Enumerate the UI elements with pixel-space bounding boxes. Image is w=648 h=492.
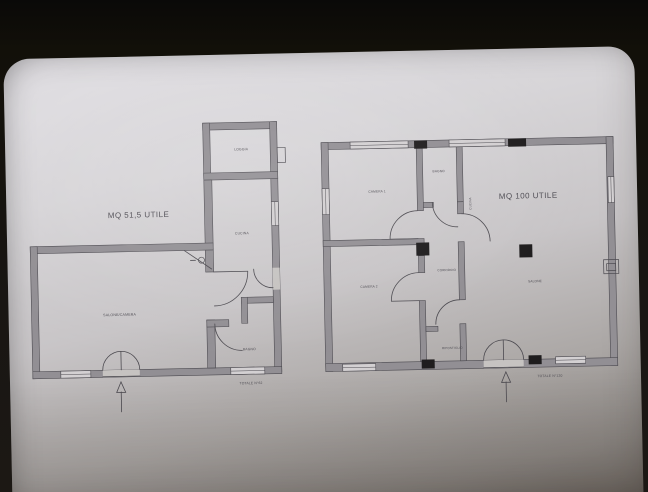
room-label-ripostiglio: RIPOSTIGLIO bbox=[442, 346, 463, 350]
room-label-bagno: BAGNO bbox=[432, 169, 445, 173]
wall bbox=[456, 147, 463, 202]
plan-total: TOTALE N°120 bbox=[537, 374, 562, 379]
plan-title: MQ 51,5 UTILE bbox=[108, 210, 170, 220]
entry-door-arc bbox=[503, 339, 523, 359]
column-mark bbox=[414, 140, 427, 148]
room-label-camera1: CAMERA 1 bbox=[368, 189, 385, 193]
wall bbox=[416, 148, 423, 211]
wall bbox=[30, 243, 213, 254]
wall bbox=[204, 180, 214, 272]
wall bbox=[606, 137, 618, 366]
wall bbox=[30, 247, 40, 379]
door-arc-cucina bbox=[462, 213, 491, 242]
wall bbox=[204, 172, 278, 181]
wall bbox=[426, 326, 438, 331]
door-arc-bagno bbox=[432, 202, 458, 228]
entrance-arrow-head bbox=[501, 372, 510, 383]
paper-sheet: MQ 51,5 UTILELOGGIACUCINASALONE/CAMERABA… bbox=[3, 46, 643, 492]
wall bbox=[270, 122, 282, 372]
wall bbox=[423, 202, 433, 207]
entry-door-arc bbox=[483, 340, 503, 360]
wall bbox=[457, 202, 463, 214]
room-label-cucina: CUCINA bbox=[468, 197, 472, 209]
column-mark bbox=[422, 359, 435, 368]
room-label-cucina: CUCINA bbox=[235, 231, 250, 235]
room-label-bagno: BAGNO bbox=[243, 347, 256, 351]
wall bbox=[321, 143, 333, 372]
wall bbox=[241, 297, 248, 323]
plan-total: TOTALE N°62 bbox=[239, 381, 262, 385]
wall bbox=[323, 239, 424, 247]
room-label-camera2: CAMERA 2 bbox=[360, 285, 377, 289]
fixture-box bbox=[277, 147, 285, 162]
photo-background: MQ 51,5 UTILELOGGIACUCINASALONE/CAMERABA… bbox=[0, 0, 648, 492]
door-leaf bbox=[391, 301, 419, 302]
column-mark bbox=[416, 242, 429, 255]
door-arc-bagno bbox=[215, 323, 243, 351]
door-arc bbox=[254, 269, 273, 288]
door-arc-camera2 bbox=[391, 273, 420, 302]
room-label-salone-camera: SALONE/CAMERA bbox=[103, 313, 136, 318]
door-leaf bbox=[214, 271, 248, 272]
room-label-corridoio: CORRIDOIO bbox=[437, 268, 456, 272]
plan-title: MQ 100 UTILE bbox=[499, 191, 558, 201]
wall bbox=[203, 122, 277, 131]
entry-door-arc bbox=[121, 351, 140, 370]
floor-plan-left: MQ 51,5 UTILELOGGIACUCINASALONE/CAMERABA… bbox=[28, 121, 291, 413]
entrance-arrow-head bbox=[117, 382, 126, 393]
door-gap bbox=[273, 268, 280, 290]
door-arc-camera1 bbox=[389, 211, 418, 240]
floor-plan-right: MQ 100 UTILECAMERA 1BAGNOCUCINACAMERA 2C… bbox=[321, 136, 621, 405]
wall bbox=[207, 320, 229, 327]
wall bbox=[418, 256, 424, 273]
wall bbox=[460, 324, 467, 361]
column-mark bbox=[508, 138, 526, 146]
column-mark bbox=[529, 355, 542, 364]
wall bbox=[419, 301, 426, 362]
entry-door-arc bbox=[102, 351, 121, 370]
column-mark bbox=[519, 244, 532, 257]
room-label-loggia: LOGGIA bbox=[234, 147, 249, 151]
wall bbox=[458, 242, 465, 300]
floor-plans-drawing: MQ 51,5 UTILELOGGIACUCINASALONE/CAMERABA… bbox=[0, 0, 648, 492]
door-arc-ripostiglio bbox=[435, 300, 459, 324]
room-label-salone: SALONE bbox=[528, 279, 542, 283]
wall bbox=[203, 123, 211, 180]
